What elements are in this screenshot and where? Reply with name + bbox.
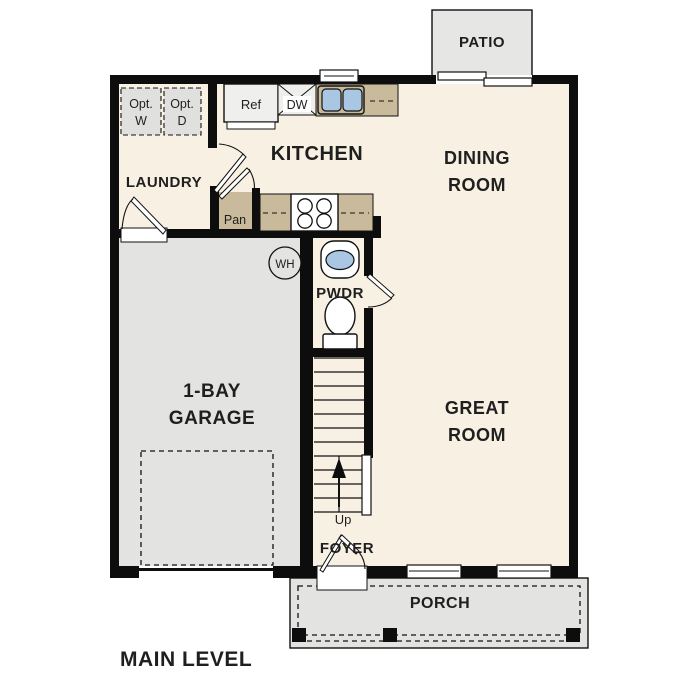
- water-heater-label: WH: [275, 259, 294, 271]
- wall-right: [569, 75, 578, 578]
- burner: [298, 214, 312, 228]
- sliding-door-panel: [438, 72, 486, 80]
- refrigerator-door: [227, 122, 275, 129]
- garage-label: 1-BAY: [183, 381, 241, 402]
- dining-room-label: ROOM: [448, 175, 506, 195]
- wall-garage-right: [300, 238, 313, 566]
- floor-plan-page: PATIO PORCH: [0, 0, 687, 687]
- laundry-fixtures: Opt. W Opt. D: [121, 88, 201, 135]
- dishwasher-label: DW: [287, 98, 308, 112]
- powder-room-label: PWDR: [316, 285, 364, 302]
- optional-washer-label: W: [135, 114, 147, 128]
- garage-floor: [119, 238, 307, 568]
- sliding-door-panel: [484, 78, 532, 86]
- patio-label: PATIO: [459, 34, 505, 51]
- stair-railing: [362, 455, 371, 515]
- porch-label: PORCH: [410, 595, 470, 612]
- optional-dryer-label: D: [177, 114, 186, 128]
- laundry-label: LAUNDRY: [126, 174, 202, 191]
- porch-post: [566, 628, 580, 642]
- sink-basin: [343, 89, 362, 111]
- toilet-bowl: [325, 297, 355, 335]
- powder-sink-basin: [326, 251, 354, 270]
- wall-left: [110, 75, 119, 578]
- garage-door-gap: [139, 566, 273, 578]
- great-room-label: GREAT: [445, 398, 509, 418]
- stairs-up-label: Up: [335, 512, 352, 527]
- garage-door-panel: [139, 568, 273, 571]
- wall-counter-end: [373, 216, 381, 238]
- sink-basin: [322, 89, 341, 111]
- wall-pantry-right: [252, 188, 260, 233]
- wall-pantry-left: [210, 186, 219, 233]
- optional-dryer-label: Opt.: [170, 97, 194, 111]
- level-title: MAIN LEVEL: [120, 648, 252, 671]
- pantry-label: Pan: [224, 213, 246, 227]
- great-room-label: ROOM: [448, 425, 506, 445]
- refrigerator-label: Ref: [241, 97, 262, 112]
- burner: [317, 199, 331, 213]
- wall-powder-right-lower: [364, 308, 373, 458]
- toilet-tank: [323, 334, 357, 349]
- floor-plan-drawing: PATIO PORCH: [0, 0, 687, 687]
- foyer-label: FOYER: [320, 540, 374, 557]
- porch-post: [383, 628, 397, 642]
- dining-room-label: DINING: [444, 148, 510, 168]
- kitchen-label: KITCHEN: [271, 143, 363, 165]
- burner: [298, 199, 312, 213]
- garage-label: GARAGE: [169, 408, 255, 429]
- porch-post: [292, 628, 306, 642]
- wall-laundry-right: [208, 84, 217, 148]
- optional-washer-label: Opt.: [129, 97, 153, 111]
- patio-area: PATIO: [432, 10, 532, 79]
- burner: [317, 214, 331, 228]
- stove: [291, 194, 338, 231]
- wall-powder-right-upper: [364, 238, 373, 276]
